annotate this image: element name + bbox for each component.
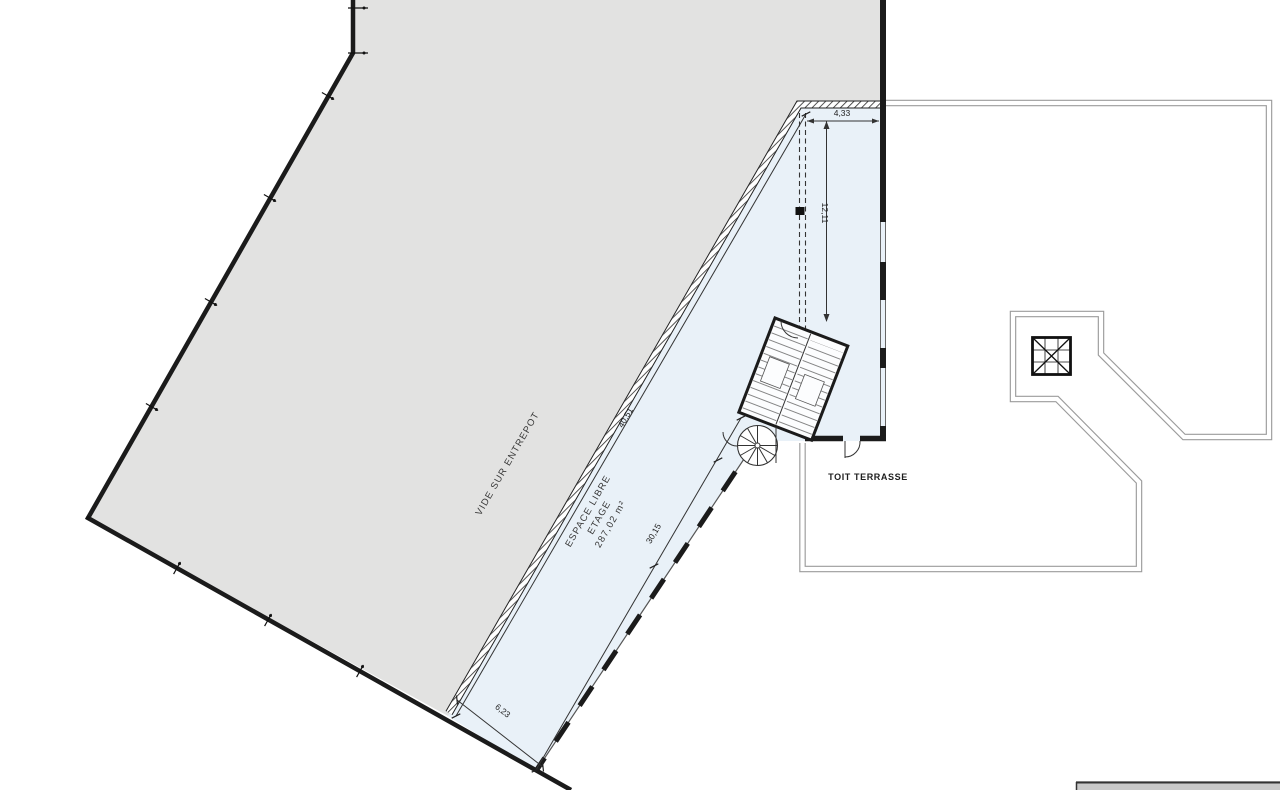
spiral-staircase	[738, 426, 778, 466]
titleblock-edge	[1076, 782, 1280, 790]
dim-bay-width: 4,33	[834, 108, 851, 118]
skylight-icon	[1033, 338, 1071, 375]
floor-plan-sheet: 4,33 12,11 40,51 30,15 6,23 VIDE SUR ENT…	[0, 0, 1280, 790]
floor-plan-drawing: 4,33 12,11 40,51 30,15 6,23 VIDE SUR ENT…	[0, 0, 1280, 790]
door-arc	[845, 441, 860, 457]
dim-bay-depth: 12,11	[820, 203, 830, 224]
label-roof-terrace: TOIT TERRASSE	[828, 472, 908, 482]
axis-marker	[796, 207, 805, 215]
